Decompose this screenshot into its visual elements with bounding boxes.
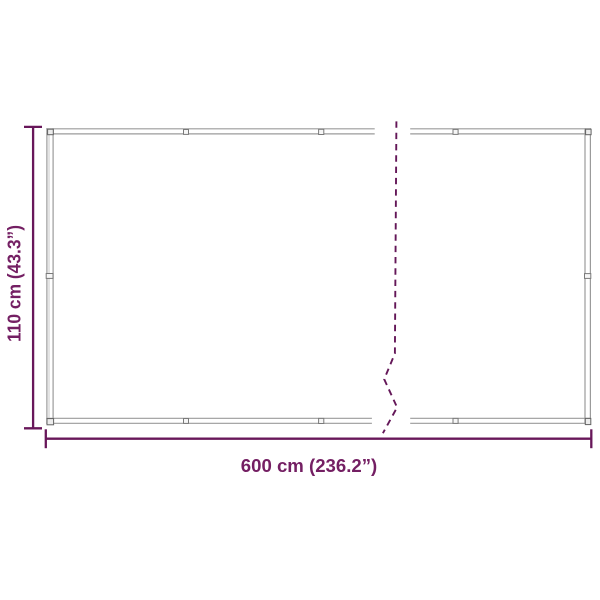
svg-text:110 cm (43.3”): 110 cm (43.3”) [4, 225, 24, 342]
svg-text:600 cm (236.2”): 600 cm (236.2”) [241, 456, 378, 476]
